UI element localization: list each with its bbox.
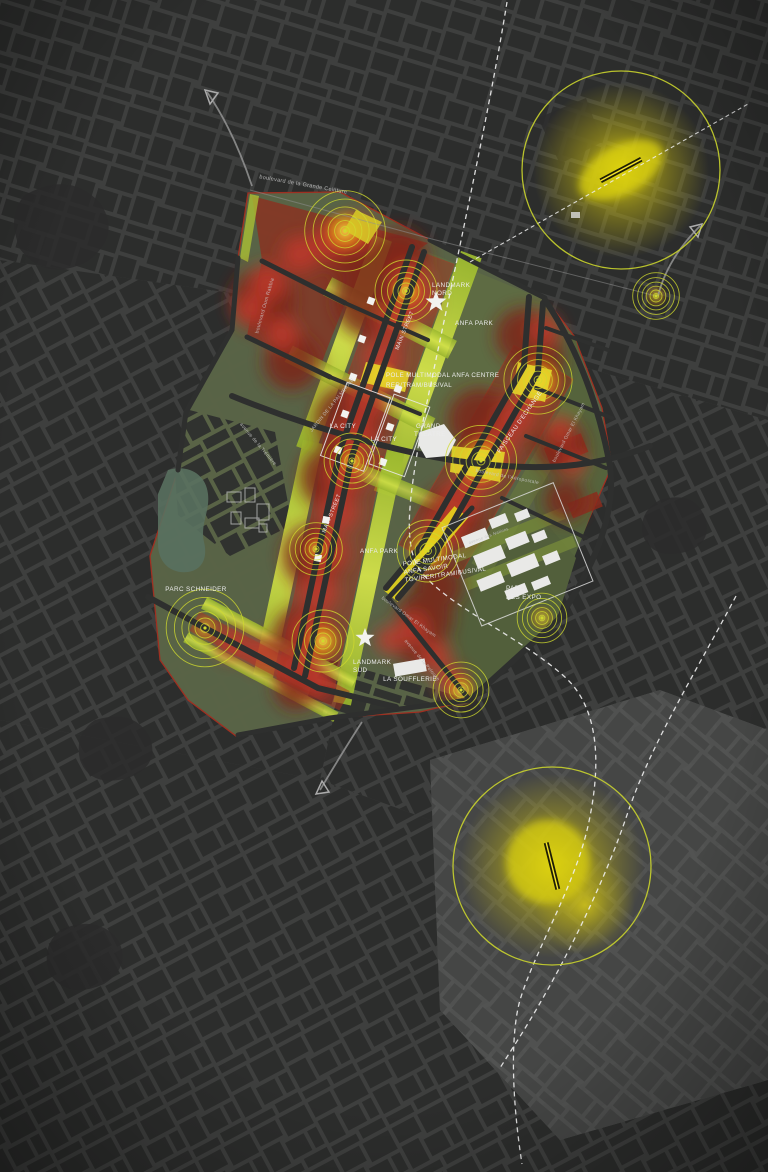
anfa-masterplan-map: boulevard de la Grande Ceintureboulevard…	[0, 0, 768, 1172]
map-label: DES EXPO	[506, 594, 541, 601]
map-label: RER/TRAM/BUS/VAL	[386, 382, 452, 389]
map-label: ANFA PARK	[360, 548, 399, 555]
map-label: ANFA PARK	[455, 320, 494, 327]
map-label: THEATRE	[414, 431, 446, 438]
vignette	[0, 0, 768, 1172]
map-label: PARC SCHNEIDER	[165, 586, 227, 593]
map-label: PARC	[506, 585, 525, 592]
map-label: LANDMARK	[432, 282, 471, 289]
map-label: NORD	[432, 290, 452, 297]
map-label: LANDMARK	[353, 659, 392, 666]
map-label: LA CITY	[330, 423, 357, 430]
map-label: LA CITY	[371, 436, 398, 443]
map-label: POLE MULTIMODAL ANFA CENTRE	[386, 372, 499, 379]
map-label: GRAND	[416, 423, 441, 430]
map-label: SUD	[353, 667, 368, 674]
map-canvas: boulevard de la Grande Ceintureboulevard…	[0, 0, 768, 1172]
map-label: LA SOUFFLERIE	[383, 676, 437, 683]
